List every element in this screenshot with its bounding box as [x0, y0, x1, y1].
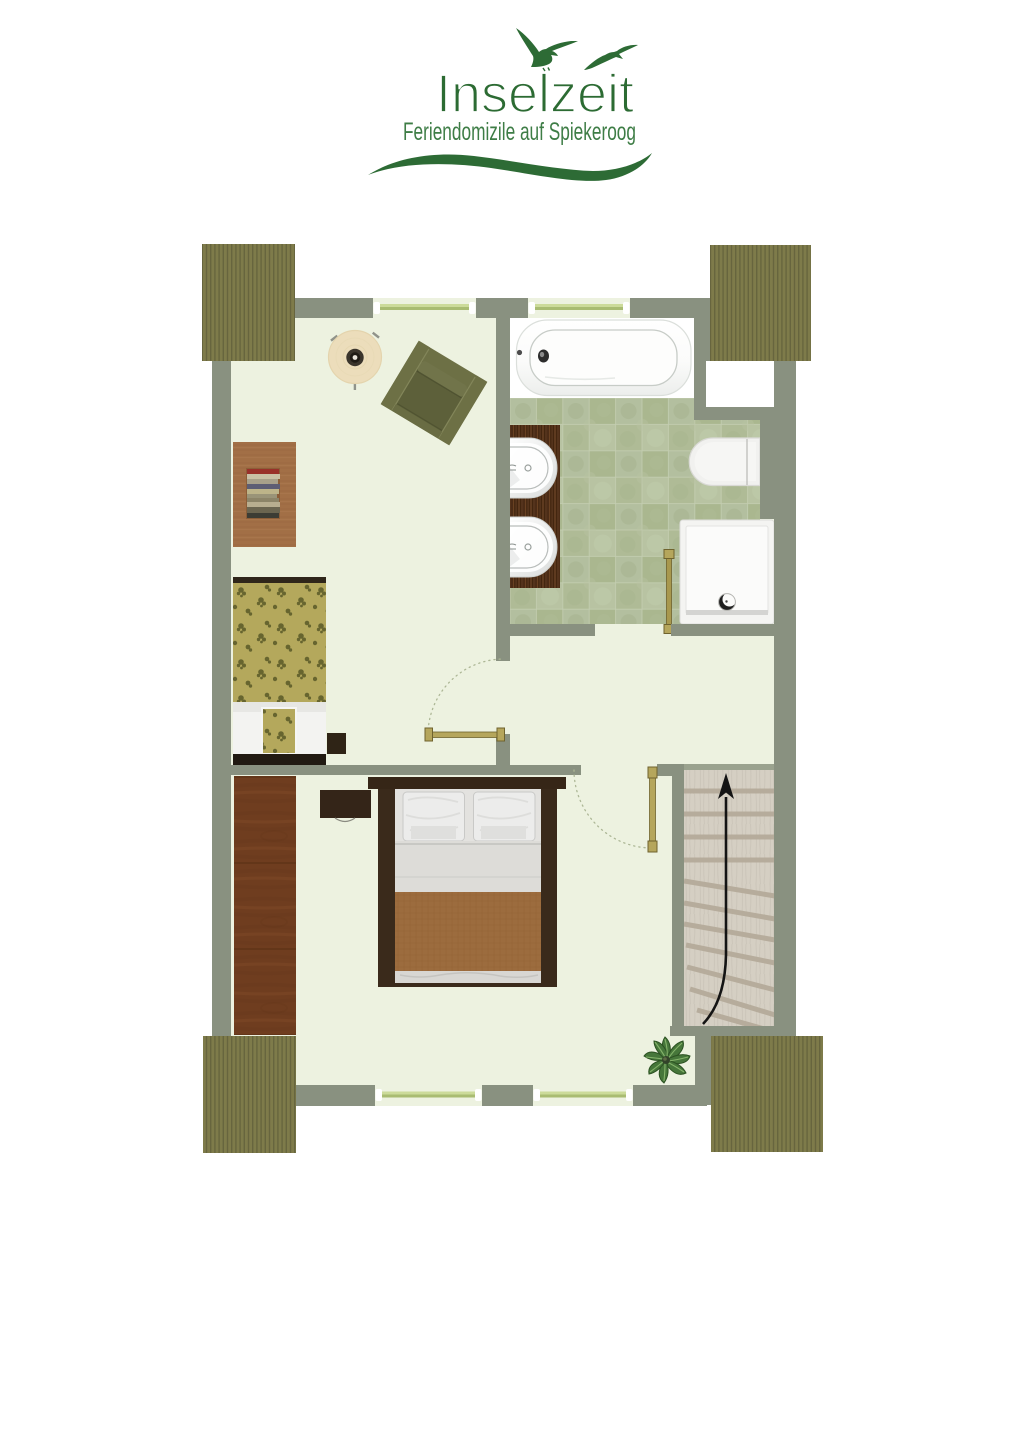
svg-text:Inselzeit: Inselzeit: [436, 64, 634, 124]
svg-text:Feriendomizile auf Spiekeroog: Feriendomizile auf Spiekeroog: [403, 118, 636, 146]
